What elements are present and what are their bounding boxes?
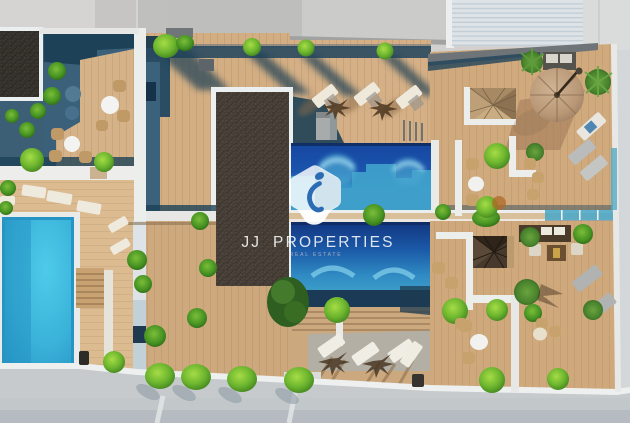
svg-text:JJ PROPERTIES: JJ PROPERTIES (241, 234, 394, 251)
svg-text:REAL ESTATE: REAL ESTATE (290, 252, 343, 258)
